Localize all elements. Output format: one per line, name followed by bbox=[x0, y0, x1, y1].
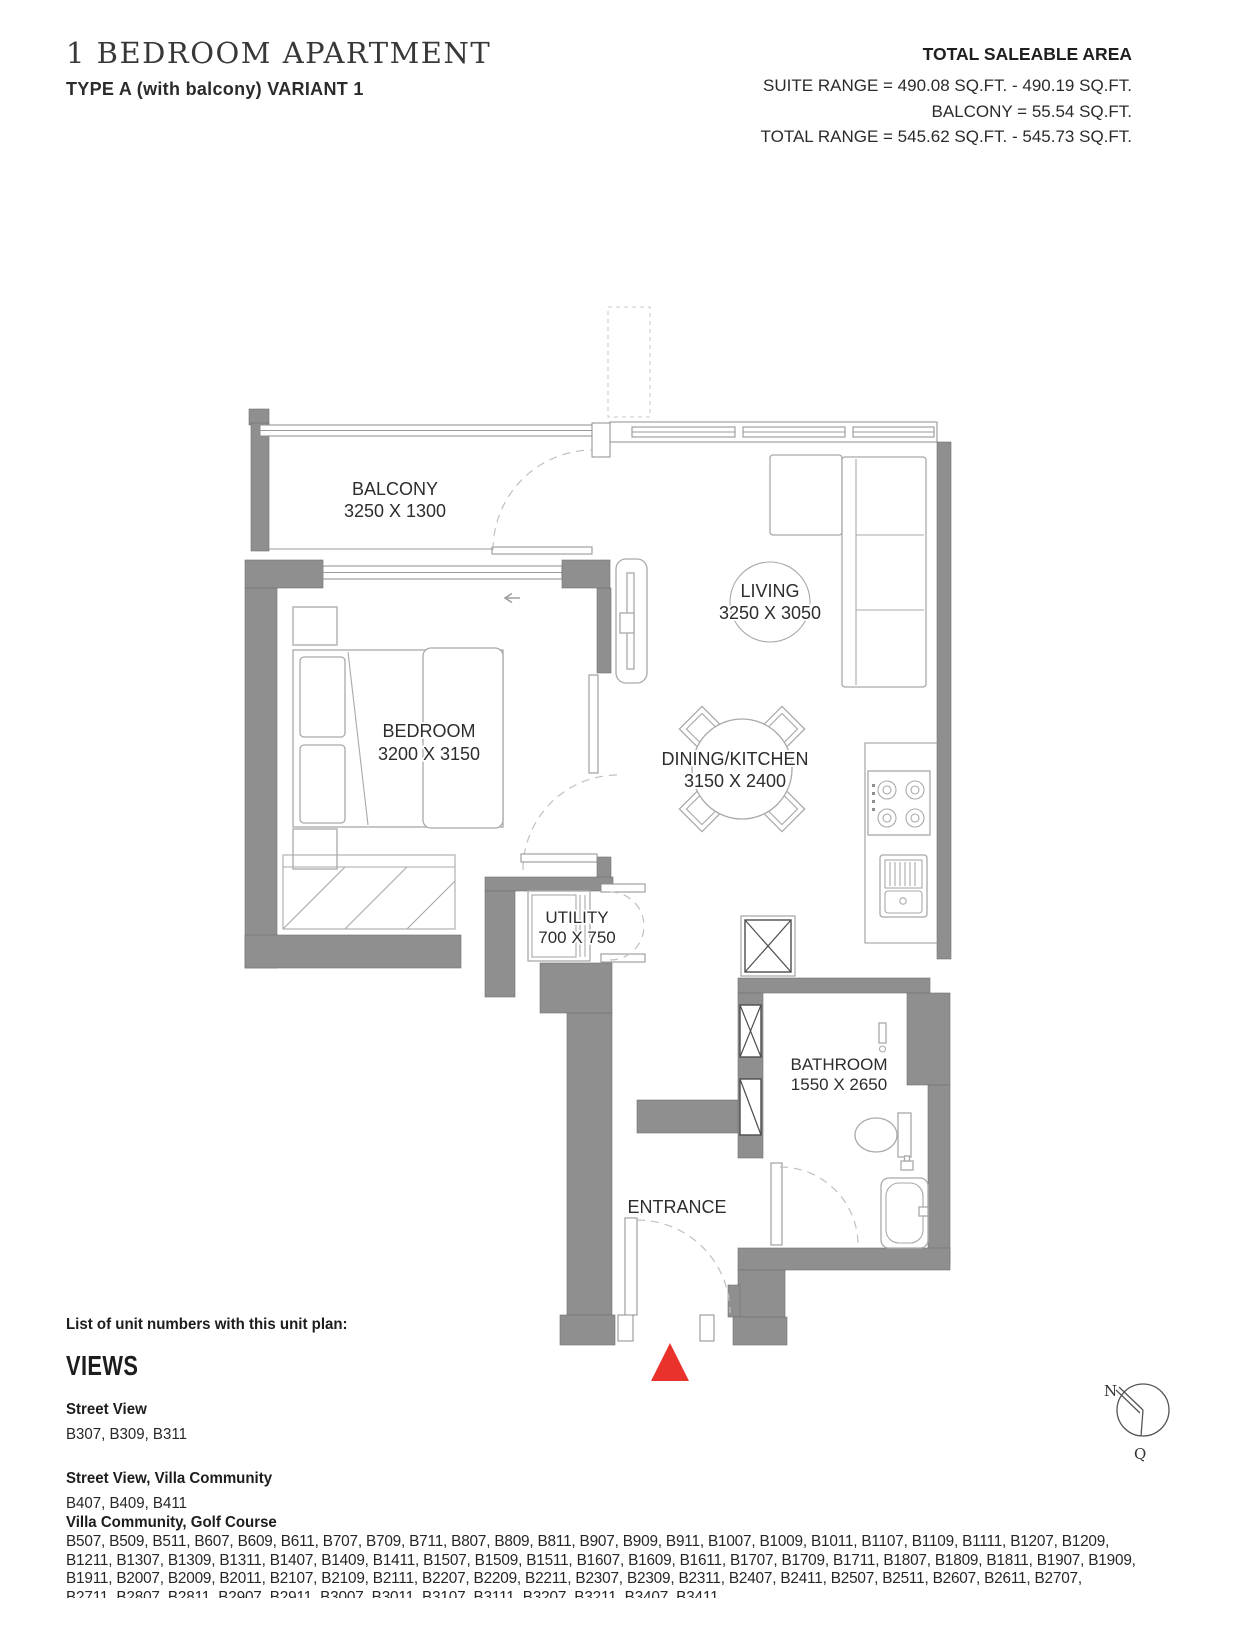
view-group-units: B307, B309, B311 bbox=[66, 1426, 187, 1444]
bathroom-room: BATHROOM 1550 X 2650 bbox=[728, 978, 950, 1345]
utility-label: UTILITY bbox=[545, 908, 608, 927]
view-group-units: B407, B409, B411 bbox=[66, 1495, 187, 1513]
view-group-units-list: B507, B509, B511, B607, B609, B611, B707… bbox=[66, 1533, 1190, 1598]
balcony-room: BALCONY 3250 X 1300 bbox=[249, 409, 610, 554]
views-heading: VIEWS bbox=[66, 1350, 138, 1382]
entrance-marker-icon bbox=[651, 1343, 689, 1381]
living-label: LIVING bbox=[740, 581, 799, 601]
page-title: 1 BEDROOM APARTMENT bbox=[66, 36, 491, 70]
utility-dims: 700 X 750 bbox=[538, 928, 616, 947]
basin-tap bbox=[901, 1156, 913, 1170]
bedroom-door-leaf bbox=[589, 675, 598, 773]
dining-kitchen-label: DINING/KITCHEN bbox=[661, 749, 808, 769]
entrance-door-leaf bbox=[625, 1218, 637, 1315]
bathroom-dims: 1550 X 2650 bbox=[791, 1075, 887, 1094]
bathroom-label: BATHROOM bbox=[791, 1055, 888, 1074]
living-label-circle bbox=[730, 562, 810, 642]
total-range: TOTAL RANGE = 545.62 SQ.FT. - 545.73 SQ.… bbox=[761, 124, 1132, 150]
page-subtitle: TYPE A (with balcony) VARIANT 1 bbox=[66, 79, 364, 100]
floorplan-page: 1 BEDROOM APARTMENT TYPE A (with balcony… bbox=[0, 0, 1241, 1628]
view-group-label: Street View, Villa Community bbox=[66, 1470, 272, 1488]
view-group-label: Street View bbox=[66, 1401, 147, 1419]
dashed-extension bbox=[608, 307, 650, 417]
direction-arrow-icon bbox=[505, 594, 520, 603]
bedroom-label: BEDROOM bbox=[382, 721, 475, 741]
entrance-area: ENTRANCE bbox=[618, 1197, 730, 1381]
bathroom-door-arc bbox=[780, 1167, 858, 1245]
dining-kitchen-dims: 3150 X 2400 bbox=[684, 771, 786, 791]
media-console bbox=[616, 559, 647, 683]
entrance-door-arc bbox=[637, 1220, 730, 1313]
compass-icon: N Q bbox=[1070, 1358, 1220, 1473]
corridor-walls bbox=[540, 963, 743, 1345]
balcony-area: BALCONY = 55.54 SQ.FT. bbox=[761, 99, 1132, 125]
shower-fitting bbox=[879, 1023, 886, 1052]
kitchen-shaft bbox=[741, 916, 795, 976]
entrance-label: ENTRANCE bbox=[627, 1197, 726, 1217]
compass-south-label: Q bbox=[1134, 1445, 1146, 1463]
dining-kitchen-room: DINING/KITCHEN 3150 X 2400 bbox=[661, 706, 937, 976]
unit-list-intro: List of unit numbers with this unit plan… bbox=[66, 1316, 348, 1334]
unit-line-clipped: B2711, B2807, B2811, B2907, B2911, B3007… bbox=[66, 1589, 1190, 1598]
unit-line: B507, B509, B511, B607, B609, B611, B707… bbox=[66, 1533, 1190, 1552]
unit-line: B1211, B1307, B1309, B1311, B1407, B1409… bbox=[66, 1552, 1190, 1571]
stove bbox=[868, 771, 930, 835]
bathtub bbox=[881, 1178, 928, 1248]
view-group-label: Villa Community, Golf Course bbox=[66, 1514, 277, 1532]
living-dims: 3250 X 3050 bbox=[719, 603, 821, 623]
bathroom-door-leaf bbox=[771, 1163, 782, 1245]
utility-door-arc bbox=[610, 892, 644, 926]
kitchen-sink bbox=[880, 855, 927, 917]
balcony-door-arc bbox=[493, 450, 593, 550]
dining-table bbox=[679, 706, 804, 831]
floorplan-drawing: BALCONY 3250 X 1300 LIVING 3250 X 305 bbox=[235, 285, 955, 1410]
balcony-dims: 3250 X 1300 bbox=[344, 501, 446, 521]
toilet bbox=[855, 1113, 911, 1157]
saleable-area-block: TOTAL SALEABLE AREA SUITE RANGE = 490.08… bbox=[761, 44, 1132, 150]
suite-range: SUITE RANGE = 490.08 SQ.FT. - 490.19 SQ.… bbox=[761, 73, 1132, 99]
bedroom-dims: 3200 X 3150 bbox=[378, 744, 480, 764]
balcony-label: BALCONY bbox=[352, 479, 438, 499]
sofa bbox=[770, 455, 926, 687]
compass-north-label: N bbox=[1104, 1382, 1117, 1400]
unit-line: B1911, B2007, B2009, B2011, B2107, B2109… bbox=[66, 1570, 1190, 1589]
saleable-area-heading: TOTAL SALEABLE AREA bbox=[761, 44, 1132, 65]
